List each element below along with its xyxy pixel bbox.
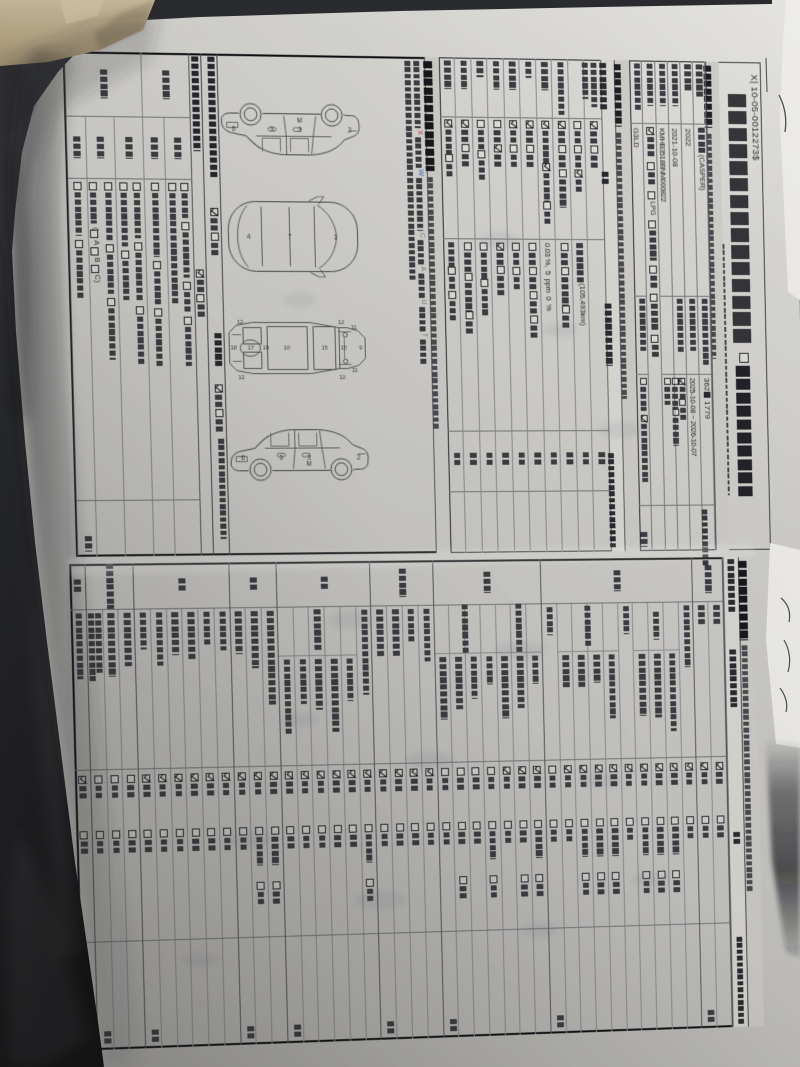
svg-text:12: 12 (238, 375, 245, 381)
svg-text:4: 4 (247, 234, 251, 241)
svg-text:1: 1 (334, 234, 338, 241)
svg-text:M: M (306, 461, 312, 468)
svg-text:2: 2 (357, 454, 361, 461)
svg-text:3: 3 (279, 455, 283, 462)
svg-text:2: 2 (348, 127, 352, 134)
svg-text:12: 12 (338, 320, 345, 326)
svg-text:12: 12 (339, 375, 346, 381)
svg-text:15: 15 (321, 346, 328, 352)
svg-text:6: 6 (232, 126, 236, 133)
svg-text:9: 9 (359, 346, 362, 352)
svg-text:11: 11 (352, 368, 358, 374)
svg-text:7: 7 (288, 234, 292, 241)
svg-text:M: M (297, 117, 303, 124)
svg-text:17: 17 (247, 345, 254, 351)
svg-text:10: 10 (340, 346, 347, 352)
svg-text:3: 3 (298, 127, 302, 134)
svg-text:3: 3 (270, 126, 274, 133)
svg-text:6: 6 (241, 455, 245, 462)
svg-text:12: 12 (237, 320, 244, 326)
svg-text:19: 19 (262, 345, 269, 351)
svg-text:11: 11 (351, 325, 357, 331)
svg-text:16: 16 (283, 346, 290, 352)
svg-text:18: 18 (230, 345, 237, 351)
